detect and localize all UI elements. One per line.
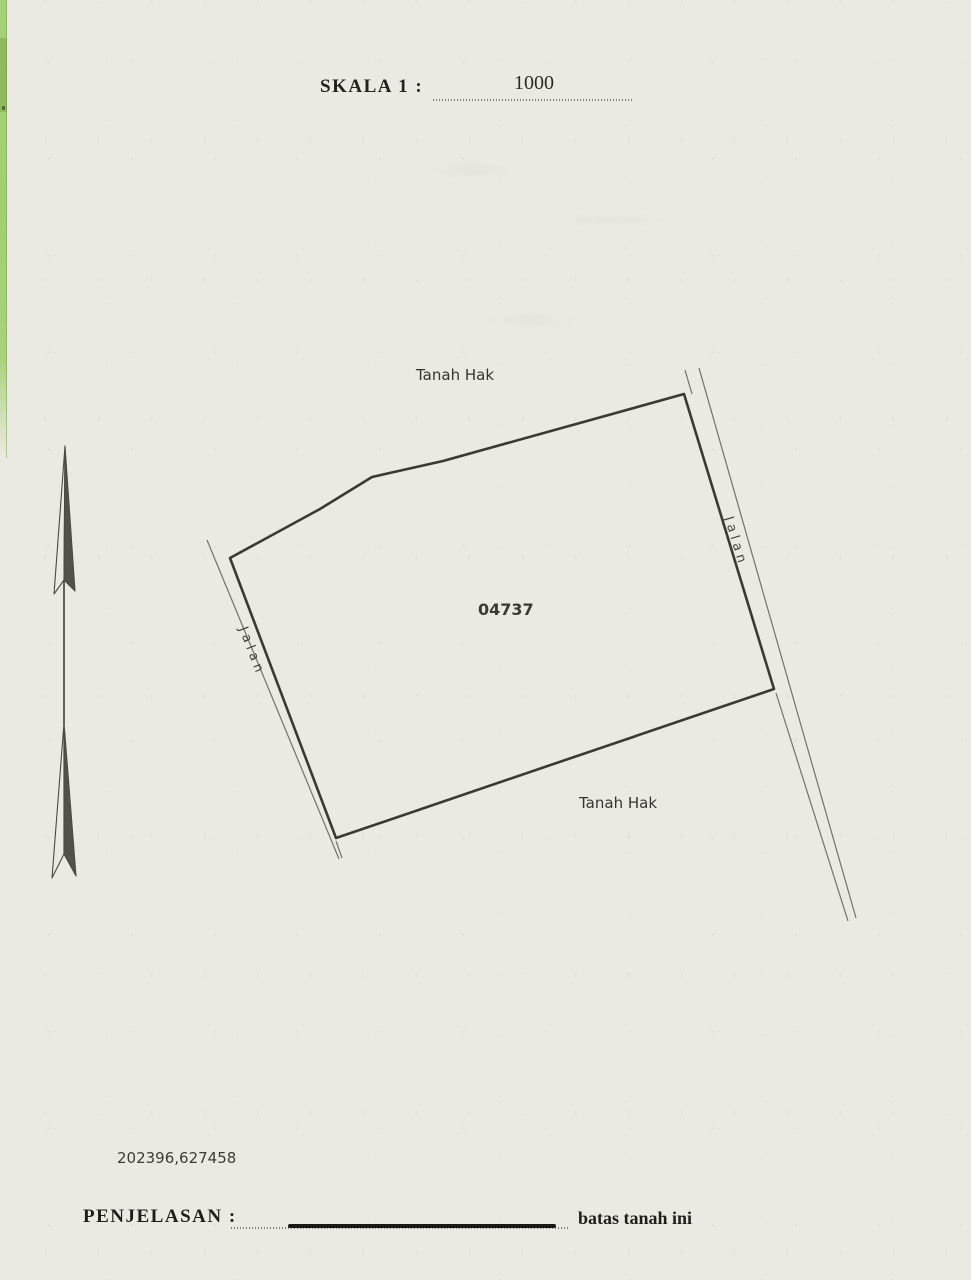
legend-description: batas tanah ini — [578, 1208, 692, 1229]
adjacent-land-label-top: Tanah Hak — [416, 366, 494, 384]
legend-label: PENJELASAN : — [83, 1206, 237, 1228]
road-right-outer-line — [699, 368, 856, 918]
north-arrow-icon — [52, 446, 76, 878]
road-left-outer-line — [207, 540, 339, 859]
road-right-inner-top — [685, 370, 692, 394]
parcel-map — [0, 0, 971, 1280]
boundary-line-symbol — [288, 1224, 556, 1228]
road-right-inner-bottom — [776, 693, 848, 921]
adjacent-land-label-bottom: Tanah Hak — [579, 794, 657, 812]
parcel-number-label: 04737 — [478, 600, 534, 619]
coordinate-text: 202396,627458 — [117, 1149, 236, 1167]
road-lines — [207, 368, 856, 921]
scanned-map-page: SKALA 1 : 1000 Tanah Hak 04737 Tanah Hak… — [0, 0, 971, 1280]
